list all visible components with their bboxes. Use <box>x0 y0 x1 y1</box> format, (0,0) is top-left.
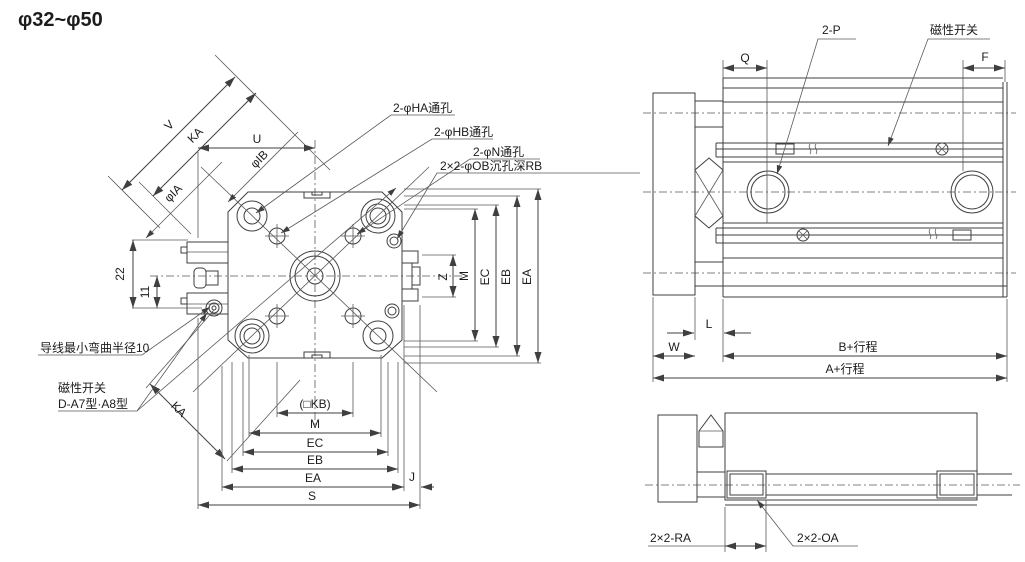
dim-label-q: Q <box>740 51 749 65</box>
switch-body <box>194 268 206 288</box>
dim-label-u: U <box>253 132 262 146</box>
end-plate <box>653 93 695 295</box>
side-view-body <box>653 78 1007 297</box>
dim-label-j: J <box>409 470 415 484</box>
dim-label-m-bottom: M <box>310 417 320 431</box>
switch-bracket <box>181 242 228 316</box>
dim-label-ea-right: EA <box>520 269 534 285</box>
port-boss-bottom <box>402 289 418 301</box>
dim-label-kb: (□KB) <box>299 397 330 411</box>
bottom-view: 2×2-RA 2×2-OA <box>645 413 1020 552</box>
label-magnetic-switch: 磁性开关 <box>930 22 978 37</box>
label-ports-2p: 2-P <box>822 23 841 37</box>
dim-label-b-stroke: B+行程 <box>838 339 877 354</box>
dim-label-z: Z <box>436 273 450 280</box>
dim-label-ia: φIA <box>161 181 184 204</box>
end-plate-bottom-view <box>658 415 697 502</box>
bottom-view-body <box>658 413 1012 505</box>
note-wire-bend: 导线最小弯曲半径10 <box>40 340 150 355</box>
rod-bushing-right <box>937 471 977 498</box>
side-view-callouts <box>777 39 990 174</box>
dim-label-ib: φIB <box>247 147 270 170</box>
hole-callout-leaders <box>38 115 640 411</box>
dim-label-11: 11 <box>138 285 152 298</box>
dim-label-eb-right: EB <box>499 269 513 285</box>
page-title: φ32~φ50 <box>18 9 103 31</box>
dim-label-ec-right: EC <box>478 268 492 285</box>
cylinder-body-outline <box>228 192 420 358</box>
guide-rod-top <box>695 101 723 127</box>
dim-label-22: 22 <box>113 267 127 281</box>
port-boss-top <box>402 251 418 263</box>
rod-bushing-left <box>727 471 766 498</box>
dim-label-s: S <box>308 489 316 503</box>
dim-label-ka-top: KA <box>185 125 206 146</box>
hole-label-ha: 2-φHA通孔 <box>393 101 452 115</box>
hole-label-hb: 2-φHB通孔 <box>434 125 493 139</box>
label-oa: 2×2-OA <box>797 531 839 545</box>
hole-label-ob: 2×2-φOB沉孔深RB <box>440 159 542 173</box>
dim-label-ka-bottom: KA <box>168 399 189 420</box>
dim-label-w: W <box>668 340 680 354</box>
front-view: V KA φIA φIB KA U 22 11 Z M <box>38 55 640 509</box>
hole-label-n: 2-φN通孔 <box>473 145 524 159</box>
dim-label-ea-bottom: EA <box>305 471 321 485</box>
dim-label-l: L <box>706 317 713 331</box>
drawing-canvas: φ32~φ50 <box>0 0 1025 562</box>
technical-drawing-page: φ32~φ50 <box>0 0 1025 562</box>
side-view-dimensions <box>653 60 1007 382</box>
dim-label-a-stroke: A+行程 <box>825 361 864 376</box>
side-view-centerlines <box>643 113 1016 273</box>
dim-label-v: V <box>161 117 177 133</box>
centerlines <box>150 140 462 427</box>
dim-label-m-right: M <box>457 271 471 281</box>
note-switch-line1: 磁性开关 <box>58 380 106 395</box>
dim-label-ec-bottom: EC <box>307 436 324 450</box>
label-ra: 2×2-RA <box>650 531 691 545</box>
guide-rod-bottom <box>695 262 723 286</box>
side-view: Q F L W B+行程 A+行程 2-P 磁性开关 <box>643 22 1016 382</box>
dim-label-f: F <box>981 50 988 64</box>
dim-label-eb-bottom: EB <box>307 453 323 467</box>
note-switch-line2: D-A7型·A8型 <box>58 397 128 411</box>
